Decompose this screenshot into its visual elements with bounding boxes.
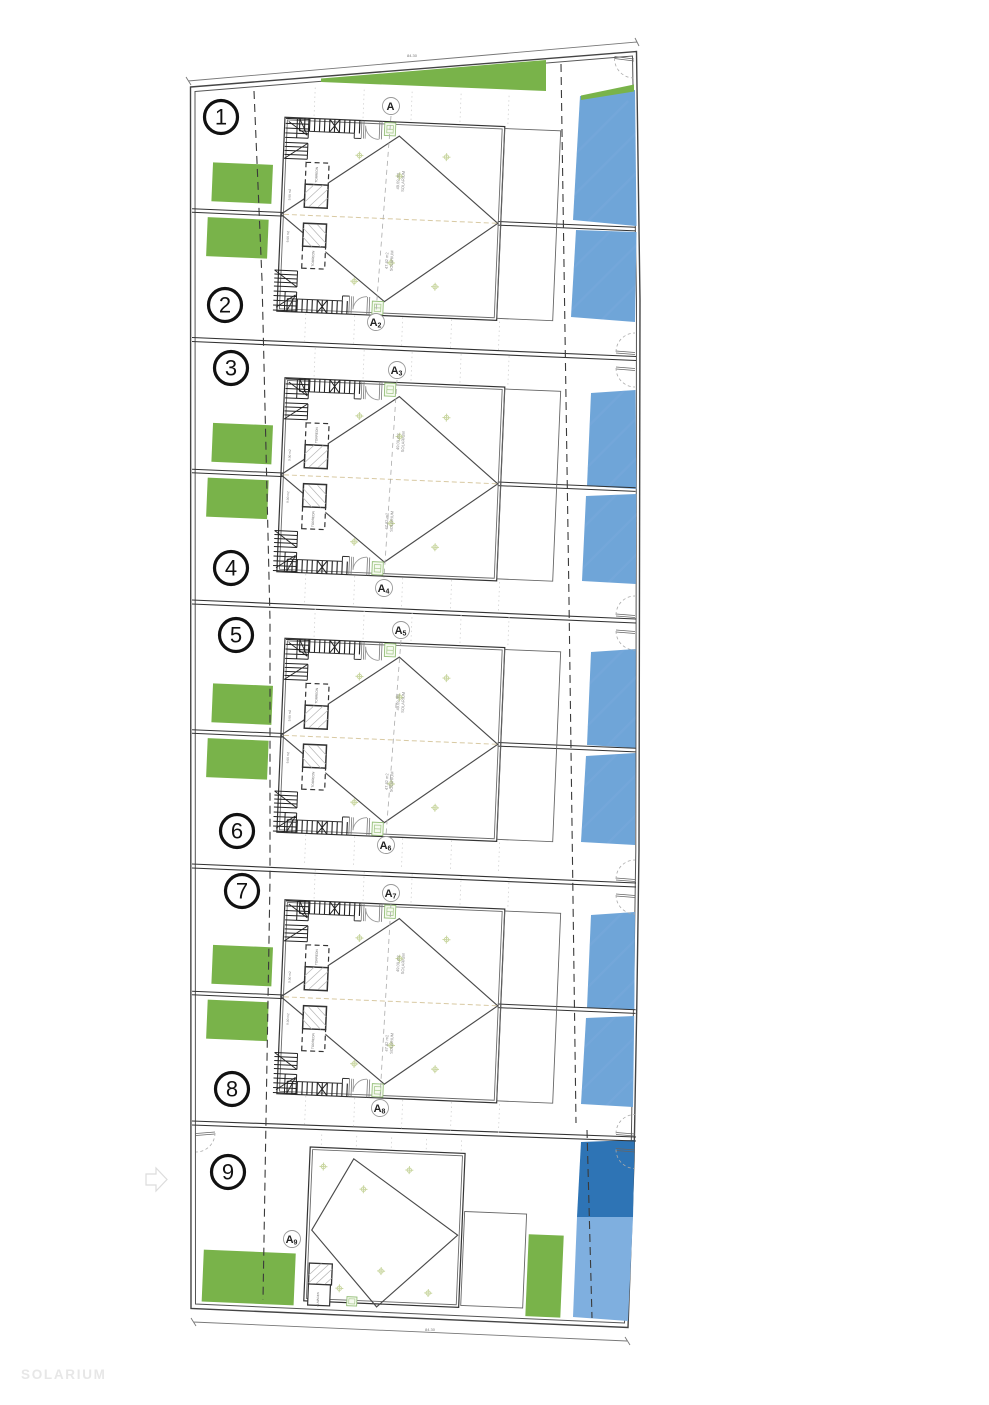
svg-text:7: 7: [236, 879, 248, 904]
svg-text:4: 4: [225, 556, 237, 581]
svg-text:ALMACEN: ALMACEN: [316, 1292, 321, 1307]
svg-text:5: 5: [230, 623, 242, 648]
svg-text:A: A: [387, 101, 395, 113]
svg-text:2: 2: [219, 293, 231, 318]
svg-text:6: 6: [231, 819, 243, 844]
svg-text:8: 8: [226, 1077, 238, 1102]
svg-text:9: 9: [222, 1160, 234, 1185]
svg-text:84.30: 84.30: [425, 1327, 436, 1332]
svg-text:1: 1: [215, 105, 227, 130]
svg-text:84.30: 84.30: [407, 53, 418, 58]
svg-text:SOLARIUM: SOLARIUM: [21, 1367, 107, 1382]
svg-text:3: 3: [225, 356, 237, 381]
